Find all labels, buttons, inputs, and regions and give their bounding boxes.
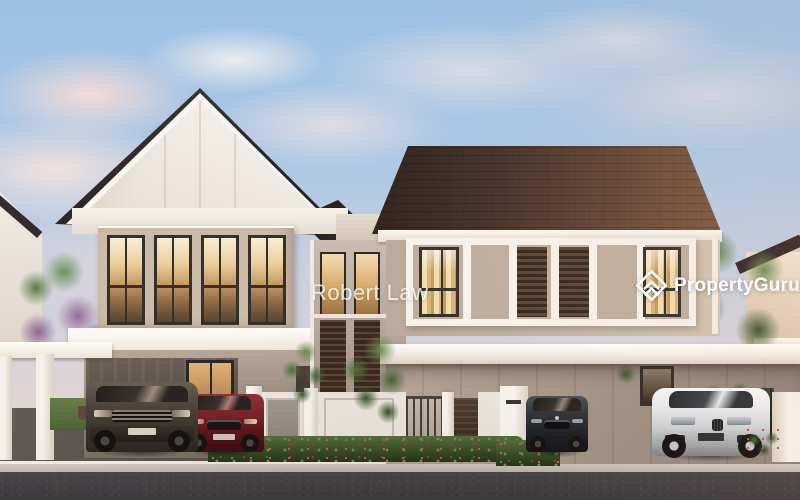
window <box>248 235 286 325</box>
windshield <box>96 386 188 402</box>
louver-shutter <box>559 247 589 317</box>
letterbox-slot <box>506 400 521 404</box>
right-house-roof <box>366 140 728 240</box>
headlight <box>727 417 751 425</box>
grille <box>112 410 172 422</box>
wheel <box>662 434 686 458</box>
headlight <box>531 419 542 423</box>
windshield <box>193 396 251 410</box>
license-plate <box>698 433 724 441</box>
window <box>201 235 239 325</box>
headlight <box>244 419 257 424</box>
property-listing-photo: Robert Law PropertyGuru <box>0 0 800 500</box>
dark-suv-car <box>86 382 198 454</box>
headlight <box>172 410 190 417</box>
mullion <box>551 245 559 319</box>
windshield <box>533 398 581 411</box>
louver-shutter <box>517 247 547 317</box>
wheel <box>568 436 584 452</box>
grille <box>207 420 241 430</box>
garden-vase <box>64 400 75 420</box>
left-carport-canopy <box>0 342 112 358</box>
garden-tree <box>280 336 332 414</box>
road <box>0 472 800 500</box>
left-house-window-bay <box>98 226 294 330</box>
mullion <box>589 245 597 319</box>
kidney-grille <box>699 419 710 431</box>
agent-watermark: Robert Law <box>311 280 429 306</box>
window <box>154 235 192 325</box>
wheel <box>241 434 259 452</box>
windshield <box>669 391 753 408</box>
mullion <box>509 245 517 319</box>
garden-tree <box>338 328 414 432</box>
headlight <box>572 419 583 423</box>
license-plate <box>128 428 156 435</box>
brand-name: PropertyGuru <box>674 275 800 297</box>
mullion <box>463 245 471 319</box>
window <box>107 235 145 325</box>
brand-watermark: PropertyGuru <box>635 269 800 302</box>
wheel <box>168 430 190 452</box>
kidney-grille <box>712 419 723 431</box>
headlight <box>671 417 695 425</box>
headlight <box>94 410 112 417</box>
wheel <box>530 436 546 452</box>
right-carport-canopy <box>380 344 800 364</box>
wheel <box>94 430 116 452</box>
carport-pillar <box>0 356 12 460</box>
license-plate <box>213 434 235 440</box>
dark-coupe-car <box>526 396 588 454</box>
corner-shrub <box>742 426 786 456</box>
grille <box>544 420 570 429</box>
propertyguru-house-icon <box>635 269 668 302</box>
